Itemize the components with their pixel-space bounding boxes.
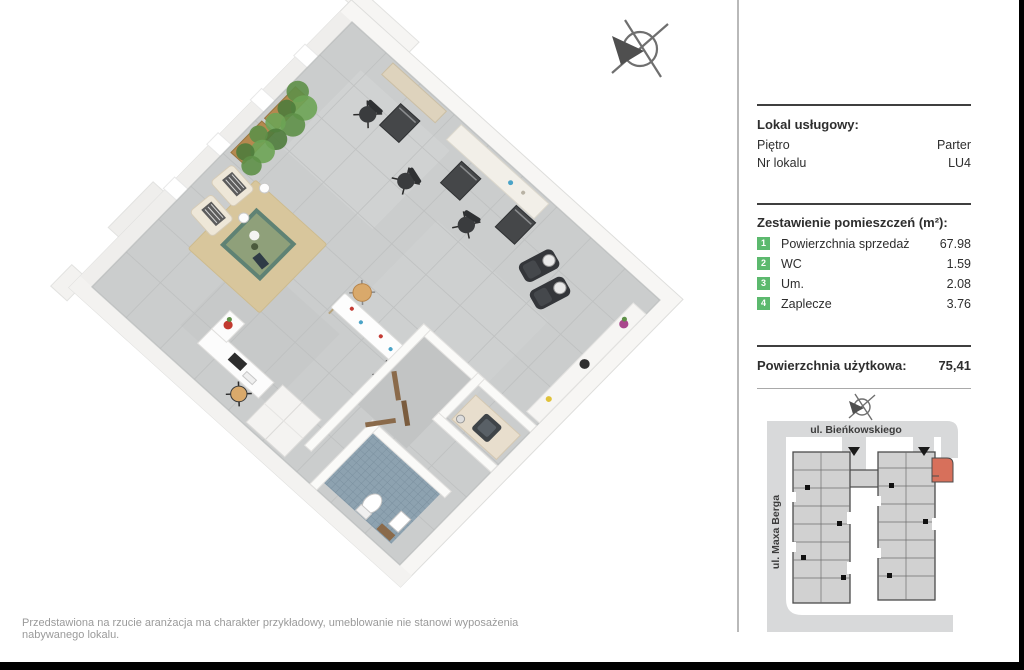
- highlighted-unit-lu4: [932, 458, 953, 482]
- unit-header-title: Lokal usługowy:: [757, 117, 859, 132]
- room-number-badge: 2: [757, 257, 770, 270]
- room-row: 1 Powierzchnia sprzedaż 67.98: [757, 237, 971, 251]
- site-map-compass-icon: [849, 394, 875, 420]
- salon-room: [51, 0, 693, 595]
- room-row: 3 Um. 2.08: [757, 277, 971, 291]
- total-area-row: Powierzchnia użytkowa: 75,41: [757, 358, 971, 373]
- floor-plan-render: [0, 0, 737, 662]
- total-area-label: Powierzchnia użytkowa:: [757, 358, 907, 373]
- street-left-label: ul. Maxa Berga: [770, 495, 782, 569]
- room-row: 2 WC 1.59: [757, 257, 971, 271]
- unit-row-floor: Piętro Parter: [757, 138, 971, 152]
- compass-icon: [612, 20, 668, 77]
- bottom-black-bar: [0, 662, 1024, 670]
- unit-number-value: LU4: [948, 156, 971, 170]
- building-footprint: [790, 452, 938, 603]
- rooms-section-title: Zestawienie pomieszczeń (m²):: [757, 215, 948, 230]
- disclaimer-text: Przedstawiona na rzucie aranżacja ma cha…: [22, 617, 582, 641]
- room-label: WC: [781, 257, 802, 271]
- divider-rule-thin: [757, 388, 971, 389]
- room-label: Zaplecze: [781, 297, 832, 311]
- room-area-value: 2.08: [947, 277, 971, 291]
- room-area-value: 1.59: [947, 257, 971, 271]
- unit-row-number: Nr lokalu LU4: [757, 156, 971, 170]
- total-area-value: 75,41: [938, 358, 971, 373]
- room-area-value: 67.98: [940, 237, 971, 251]
- site-map: ul. Bieńkowskiego ul. Maxa Berga: [757, 392, 971, 632]
- room-number-badge: 1: [757, 237, 770, 250]
- room-label: Powierzchnia sprzedaż: [781, 237, 910, 251]
- floor-label: Piętro: [757, 138, 790, 152]
- street-top-label: ul. Bieńkowskiego: [810, 424, 902, 436]
- vertical-divider: [737, 0, 739, 632]
- divider-rule: [757, 203, 971, 205]
- floorplan-page: Lokal usługowy: Piętro Parter Nr lokalu …: [0, 0, 1024, 670]
- room-label: Um.: [781, 277, 804, 291]
- divider-rule: [757, 104, 971, 106]
- right-black-bar: [1019, 0, 1024, 670]
- room-number-badge: 3: [757, 277, 770, 290]
- room-row: 4 Zaplecze 3.76: [757, 297, 971, 311]
- room-number-badge: 4: [757, 297, 770, 310]
- unit-number-label: Nr lokalu: [757, 156, 806, 170]
- floor-value: Parter: [937, 138, 971, 152]
- divider-rule: [757, 345, 971, 347]
- room-area-value: 3.76: [947, 297, 971, 311]
